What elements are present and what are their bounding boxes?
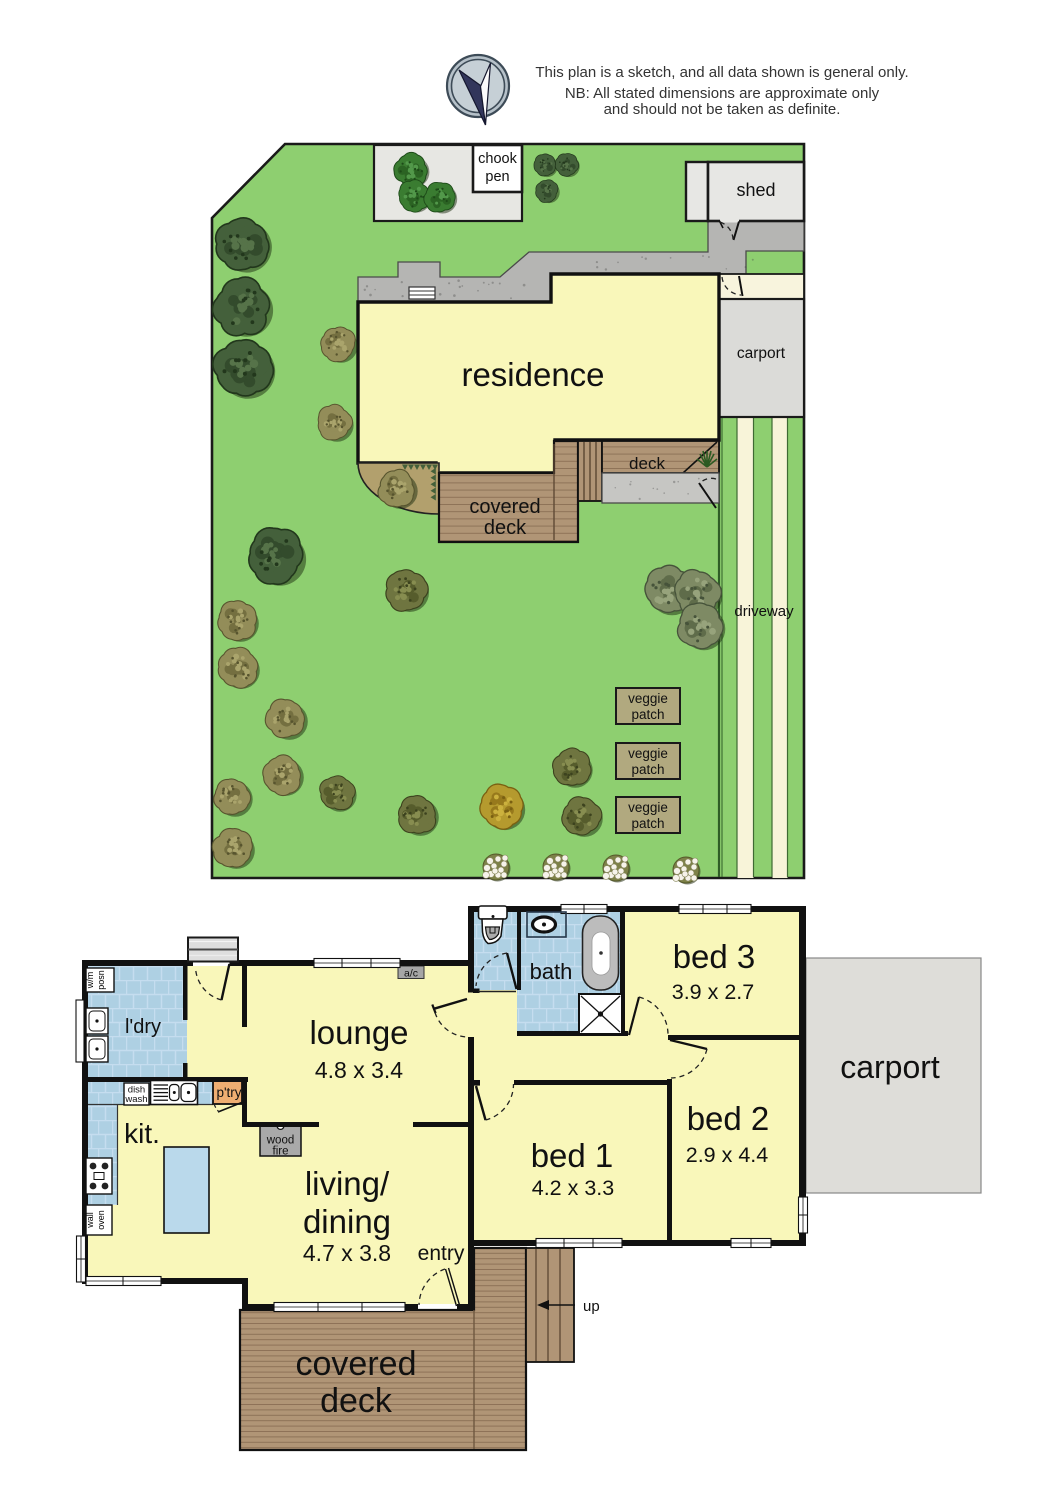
svg-text:residence: residence — [461, 356, 604, 393]
svg-text:kit.: kit. — [124, 1118, 160, 1149]
svg-text:4.8 x 3.4: 4.8 x 3.4 — [315, 1057, 403, 1083]
svg-text:This plan is a sketch, and all: This plan is a sketch, and all data show… — [535, 64, 908, 81]
svg-text:and should not be taken as def: and should not be taken as definite. — [604, 101, 841, 118]
svg-text:veggie: veggie — [628, 746, 668, 761]
svg-text:covered: covered — [296, 1345, 417, 1383]
svg-text:living/: living/ — [305, 1165, 390, 1202]
svg-text:veggie: veggie — [628, 691, 668, 706]
svg-text:deck: deck — [484, 517, 527, 539]
svg-text:patch: patch — [631, 816, 664, 831]
svg-text:deck: deck — [629, 454, 665, 473]
svg-text:w/m: w/m — [85, 972, 95, 990]
svg-text:veggie: veggie — [628, 800, 668, 815]
svg-text:driveway: driveway — [734, 603, 794, 620]
svg-text:NB: All stated dimensions are: NB: All stated dimensions are approximat… — [565, 85, 880, 102]
svg-text:patch: patch — [631, 707, 664, 722]
svg-text:bath: bath — [530, 959, 573, 984]
svg-text:lounge: lounge — [309, 1014, 408, 1051]
svg-text:a/c: a/c — [404, 968, 418, 980]
svg-text:wash: wash — [124, 1094, 147, 1105]
svg-text:entry: entry — [418, 1242, 465, 1265]
svg-text:posn: posn — [96, 970, 106, 990]
svg-text:dining: dining — [303, 1203, 391, 1240]
svg-text:l'dry: l'dry — [125, 1016, 161, 1038]
svg-text:deck: deck — [320, 1382, 393, 1420]
svg-text:shed: shed — [736, 180, 775, 200]
svg-text:4.2 x 3.3: 4.2 x 3.3 — [532, 1176, 615, 1200]
svg-text:oven: oven — [96, 1210, 106, 1230]
svg-text:covered: covered — [469, 496, 540, 518]
svg-text:carport: carport — [840, 1049, 940, 1085]
svg-text:pen: pen — [485, 169, 509, 185]
svg-text:up: up — [583, 1298, 600, 1315]
svg-text:wall: wall — [85, 1212, 95, 1229]
svg-text:p'try: p'try — [216, 1085, 241, 1100]
svg-text:bed 3: bed 3 — [673, 938, 756, 975]
svg-text:4.7 x 3.8: 4.7 x 3.8 — [303, 1240, 391, 1266]
svg-text:chook: chook — [478, 151, 517, 167]
svg-text:patch: patch — [631, 762, 664, 777]
svg-text:2.9 x 4.4: 2.9 x 4.4 — [686, 1143, 769, 1167]
svg-text:3.9 x 2.7: 3.9 x 2.7 — [672, 980, 754, 1004]
svg-text:fire: fire — [273, 1146, 289, 1158]
svg-text:carport: carport — [737, 345, 786, 362]
svg-text:bed 2: bed 2 — [687, 1100, 770, 1137]
svg-text:bed 1: bed 1 — [531, 1137, 614, 1174]
